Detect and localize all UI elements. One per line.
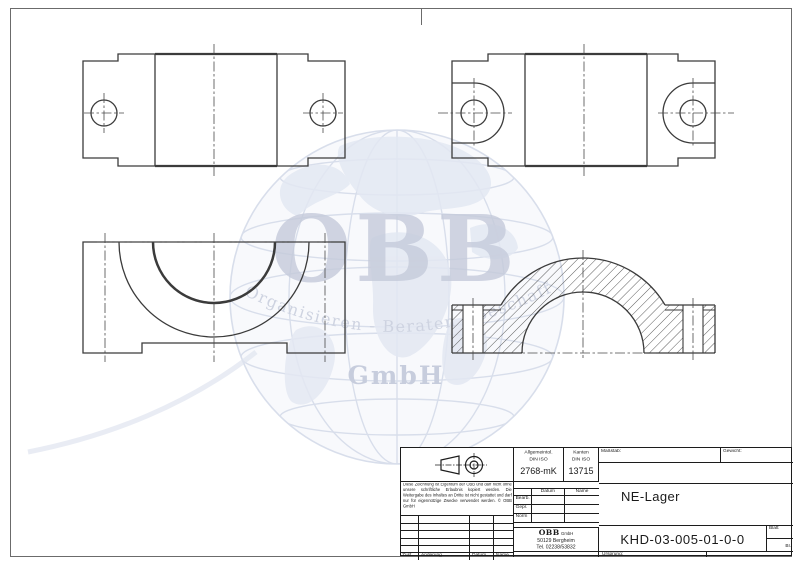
first-angle-projection-icon bbox=[401, 448, 514, 482]
title-block: Diese Zeichnung ist Eigentum der OBB und… bbox=[400, 447, 792, 556]
revision-col-datum: Datum bbox=[472, 553, 486, 558]
scale-label: Maßstab: bbox=[601, 449, 621, 454]
general-tolerance-standard: DIN ISO bbox=[518, 457, 558, 462]
company-address-cell: OBB GmbH 50129 Bergheim Tel. 02238/53832 bbox=[514, 527, 599, 552]
part-title-cell: NE-Lager bbox=[599, 484, 793, 526]
sheet-cell: Blatt bbox=[767, 526, 793, 539]
origin-label: Ursprung: bbox=[602, 552, 623, 557]
approval-col-name: Name bbox=[576, 489, 589, 494]
company-name: OBB bbox=[539, 529, 560, 538]
edges-standard: DIN ISO bbox=[567, 457, 595, 462]
general-tolerance-value: 2768-mK bbox=[514, 467, 563, 477]
approval-row-gepr: Gepr. bbox=[514, 505, 527, 510]
part-title: NE-Lager bbox=[621, 489, 680, 504]
sheet-abbr: Bl. bbox=[785, 544, 791, 549]
approval-table: Datum Name Bearb. Gepr. Norm bbox=[514, 488, 599, 523]
company-watermark: OBB Organisieren - Beraten - Beschaffen … bbox=[0, 0, 564, 464]
revision-col-aenderung: Änderung bbox=[421, 553, 442, 558]
company-phone: Tel. 02238/53832 bbox=[520, 545, 591, 551]
edges-cell: Kanten DIN ISO 13715 bbox=[564, 448, 599, 482]
scale-value-cell bbox=[599, 463, 793, 484]
revision-col-name: Name bbox=[496, 553, 509, 558]
approval-row-bearb: Bearb. bbox=[514, 496, 530, 501]
edges-label: Kanten bbox=[567, 450, 595, 455]
revision-table bbox=[401, 516, 514, 552]
projection-symbol-cell bbox=[401, 448, 514, 482]
top-view-drawing bbox=[83, 44, 345, 176]
sheet-count-cell: Bl. bbox=[767, 539, 793, 552]
approval-col-datum: Datum bbox=[541, 489, 555, 494]
weight-cell: Gewicht: bbox=[721, 448, 793, 463]
sheet-label: Blatt bbox=[769, 526, 779, 531]
general-tolerance-cell: Allgemeintol. DIN ISO 2768-mK bbox=[514, 448, 564, 482]
drawing-number-cell: KHD-03-005-01-0-0 bbox=[599, 526, 767, 552]
disclaimer-cell: Diese Zeichnung ist Eigentum der OBB und… bbox=[401, 482, 514, 516]
watermark-gmbh-text: GmbH bbox=[348, 361, 445, 390]
origin-cell: Ursprung: bbox=[599, 552, 793, 557]
revision-label-row: Zust. Änderung Datum Name bbox=[401, 552, 514, 557]
approval-row-norm: Norm bbox=[514, 514, 527, 519]
drawing-number: KHD-03-005-01-0-0 bbox=[599, 533, 766, 547]
weight-label: Gewicht: bbox=[723, 449, 742, 454]
swoosh-decoration bbox=[28, 352, 256, 452]
revision-col-zust: Zust. bbox=[402, 553, 413, 558]
general-tolerance-label: Allgemeintol. bbox=[518, 450, 558, 455]
scale-cell: Maßstab: bbox=[599, 448, 721, 463]
disclaimer-text: Diese Zeichnung ist Eigentum der OBB und… bbox=[403, 483, 512, 510]
edges-value: 13715 bbox=[564, 467, 598, 477]
company-legal: GmbH bbox=[561, 532, 573, 537]
